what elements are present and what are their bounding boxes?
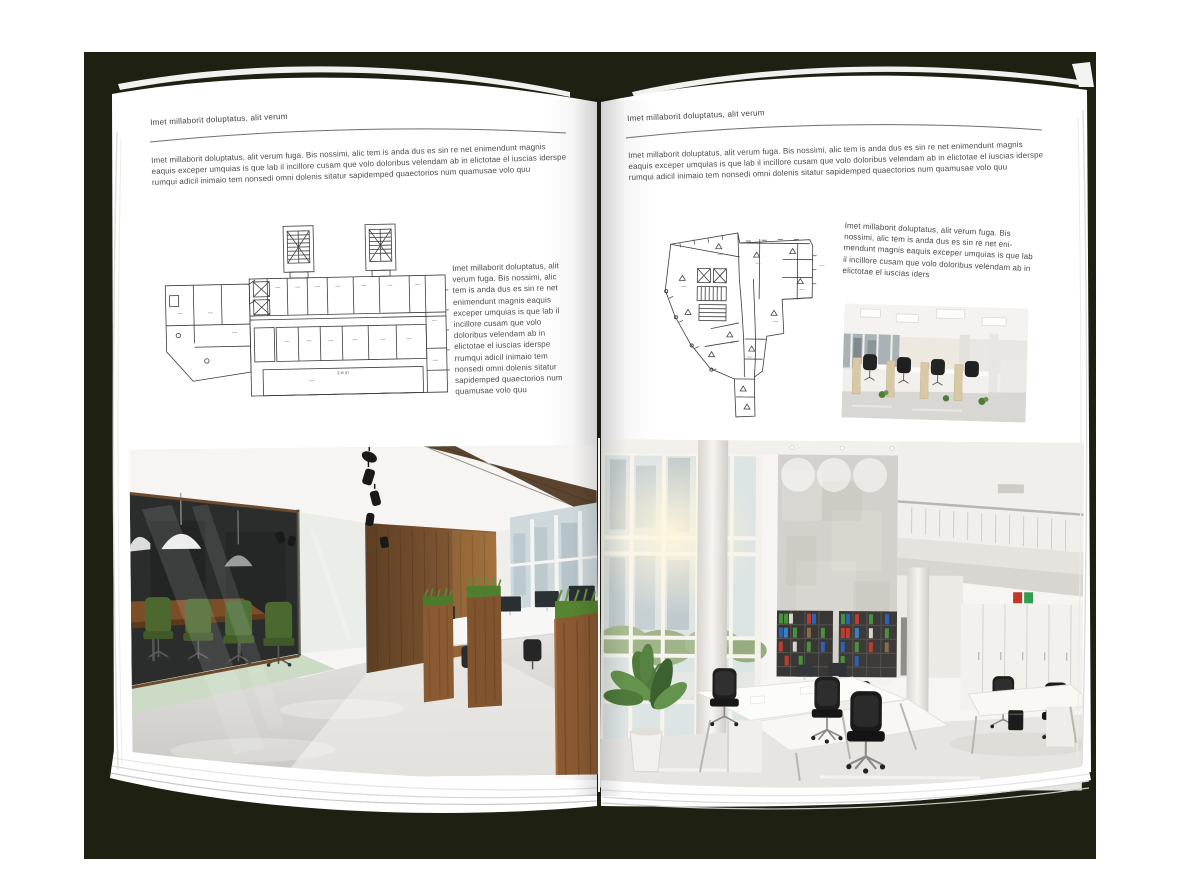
left-page-side-text: Imet millaborit doluptatus, alit verum f… <box>452 260 575 397</box>
column-small <box>906 567 929 719</box>
floorplan-left-caption: 2-й эт <box>337 370 349 375</box>
floorplan-left-lines <box>164 223 450 398</box>
mockup-canvas: Imet millaborit doluptatus, alit verum I… <box>0 0 1200 891</box>
floorplan-right-lines <box>663 232 817 418</box>
floorplan-drawing-left: 2-й эт <box>156 220 452 420</box>
right-page-side-text: Imet millaborit doluptatus, alit verum f… <box>842 220 1037 285</box>
floorplan-right-svg <box>648 218 840 426</box>
floorplan-right-dim-marks <box>680 254 824 397</box>
floorplan-left-svg <box>156 220 452 420</box>
photo-office-glass-meeting-room <box>129 445 599 780</box>
photo-small-svg <box>841 303 1028 422</box>
floorplan-drawing-right <box>648 218 840 426</box>
small-floor <box>841 387 1026 422</box>
floorplan-right-room-markers <box>678 243 804 409</box>
photo-right-svg <box>600 439 1084 790</box>
partition-2 <box>988 334 999 394</box>
glass-side-panel <box>298 511 367 654</box>
photo-office-atrium <box>600 439 1084 790</box>
photo-office-small <box>841 303 1028 422</box>
photo-left-svg <box>129 445 599 780</box>
